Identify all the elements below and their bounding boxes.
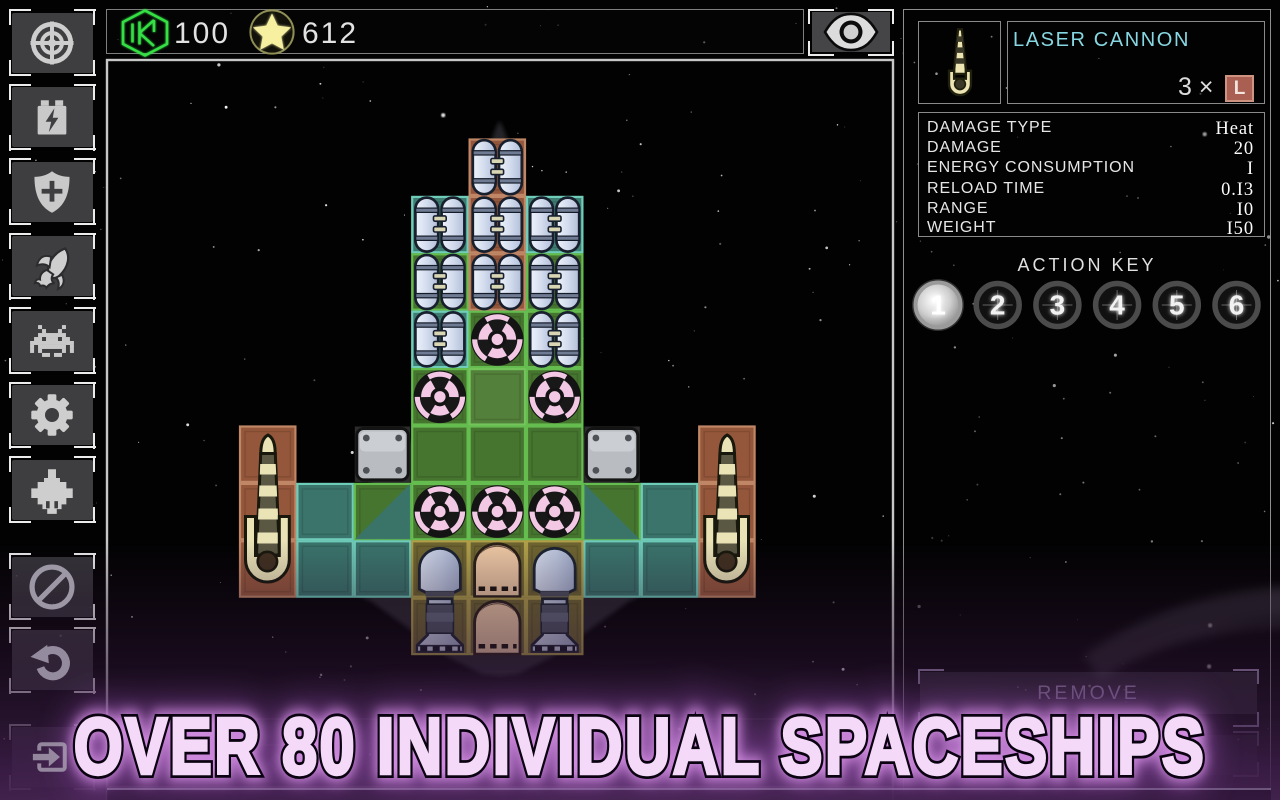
svg-text:OVER 80 INDIVIDUAL SPACESHIPS: OVER 80 INDIVIDUAL SPACESHIPS bbox=[74, 702, 1206, 791]
